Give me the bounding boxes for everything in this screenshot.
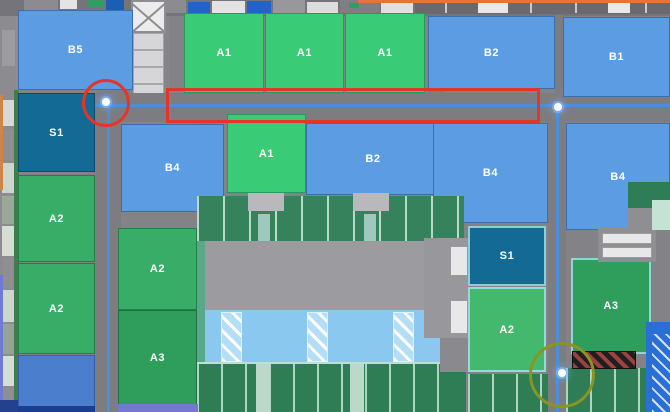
building-decor (2, 226, 14, 256)
map-point-marker[interactable] (554, 103, 562, 111)
unit-block-b2[interactable]: B2 (306, 123, 440, 195)
unit-block[interactable] (18, 355, 95, 407)
building-decor (188, 2, 210, 13)
site-map: B5A1A1A1B2B1S1B4A1B2B4B4A2A2A2A3S1A2A3 (0, 0, 670, 412)
building-decor (106, 0, 124, 10)
unit-block-a2[interactable]: A2 (468, 287, 546, 372)
road-center-line (95, 104, 670, 107)
unit-block-b5[interactable]: B5 (18, 10, 133, 90)
road-horizontal (93, 93, 670, 122)
unit-block-a1[interactable]: A1 (265, 13, 344, 93)
building-decor (2, 100, 14, 126)
road-stub (428, 91, 444, 97)
building-decor (88, 0, 103, 7)
building-decor (3, 130, 14, 160)
parking-lane (364, 214, 376, 241)
building-decor (166, 0, 186, 13)
hatched-zone (221, 312, 242, 362)
building-decor (18, 406, 95, 412)
unit-block-a3[interactable]: A3 (571, 258, 651, 354)
map-point-marker[interactable] (558, 369, 566, 377)
parking-lane (258, 214, 270, 241)
unit-block-a3[interactable]: A3 (118, 310, 197, 405)
garage-entrance (353, 193, 389, 211)
building-decor (60, 0, 77, 9)
building-decor (2, 290, 14, 322)
orange-boundary-line (358, 0, 670, 3)
building-decor (450, 300, 468, 334)
unit-block-s1[interactable]: S1 (18, 93, 95, 172)
unit-block-a2[interactable]: A2 (118, 228, 197, 310)
unit-block-a1[interactable]: A1 (345, 13, 425, 93)
building-decor (608, 2, 630, 13)
carport-stall (602, 233, 652, 244)
building-decor (440, 338, 468, 372)
building-decor (2, 356, 14, 386)
unit-block-b1[interactable]: B1 (563, 17, 670, 97)
building-decor (307, 2, 338, 13)
building-decor (247, 1, 271, 13)
unit-block-a2[interactable]: A2 (18, 175, 95, 262)
unit-block-a2[interactable]: A2 (18, 263, 95, 354)
road-center-line (107, 104, 110, 412)
hatched-zone (652, 334, 670, 412)
building-decor (349, 3, 359, 8)
parking-lane (256, 364, 270, 412)
building-decor (381, 2, 413, 13)
parking-row (197, 196, 464, 241)
hatched-zone (393, 312, 414, 362)
building-decor (273, 0, 305, 13)
building-decor (2, 30, 15, 66)
road-center-line (556, 104, 559, 412)
purple-boundary-line (0, 275, 3, 412)
map-point-marker[interactable] (102, 98, 110, 106)
building-decor (212, 1, 245, 13)
unit-block-b2[interactable]: B2 (428, 16, 555, 89)
building-decor (118, 404, 198, 412)
building-decor (450, 246, 468, 276)
x-roof-building (131, 0, 166, 33)
parking-lane (197, 241, 205, 364)
hatched-zone (307, 312, 328, 362)
building-decor (478, 2, 508, 13)
unit-block-a1[interactable]: A1 (227, 114, 306, 193)
unit-block-a1[interactable]: A1 (184, 13, 264, 93)
parking-lane (350, 364, 364, 412)
unit-block-s1[interactable]: S1 (468, 226, 546, 286)
white-building (133, 33, 164, 95)
carport-stall (602, 247, 652, 258)
restricted-hatched-strip (572, 351, 636, 369)
garage-entrance (248, 193, 284, 211)
parking-row (197, 364, 464, 412)
parking-row (440, 372, 466, 412)
green-area (652, 200, 670, 230)
parking-deck (205, 241, 447, 310)
building-decor (2, 163, 14, 193)
orange-boundary-line (0, 95, 3, 190)
parking-row (468, 374, 548, 412)
